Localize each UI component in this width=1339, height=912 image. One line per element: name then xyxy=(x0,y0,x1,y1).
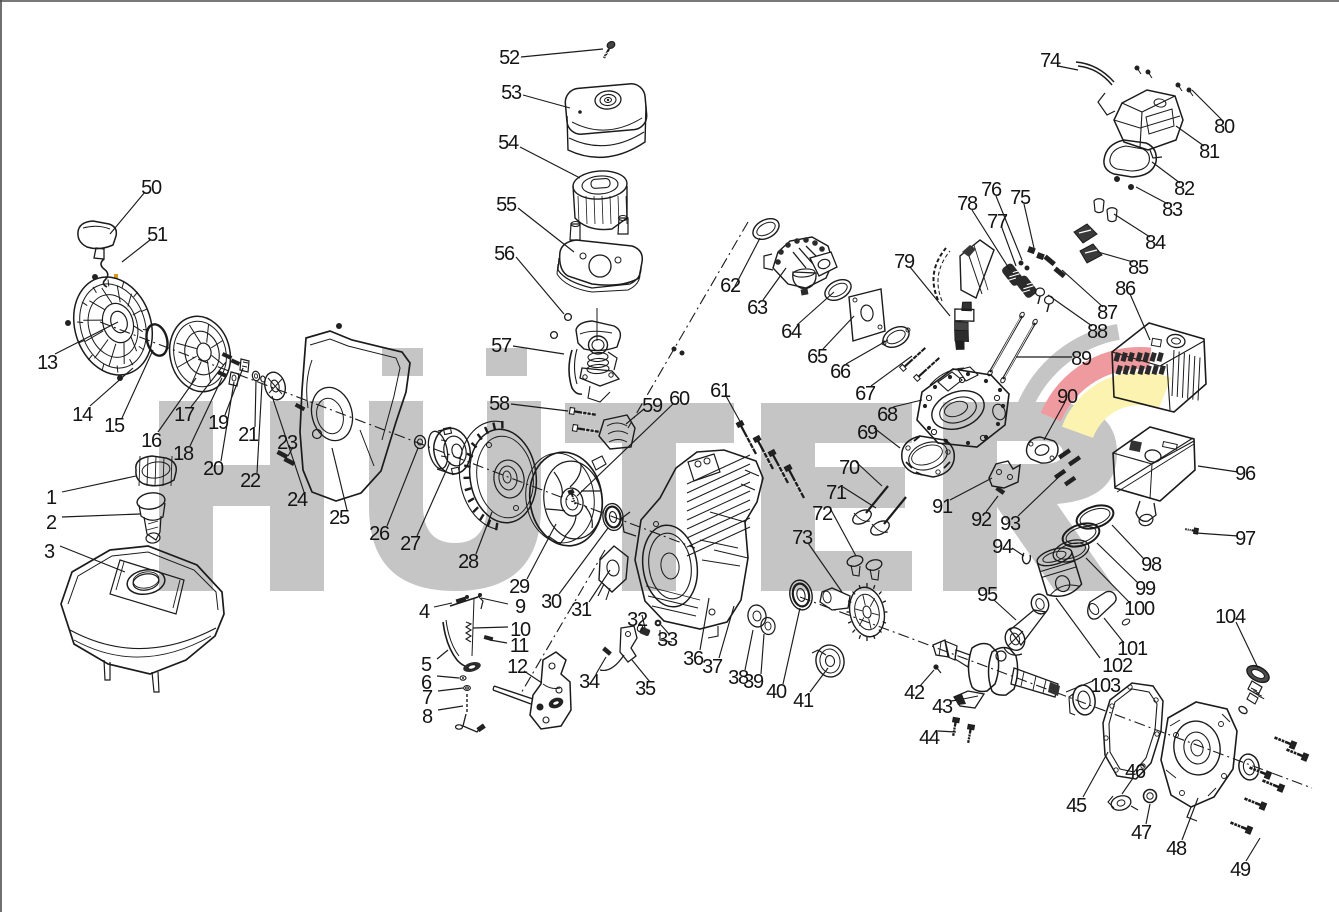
svg-text:70: 70 xyxy=(839,457,860,479)
svg-text:21: 21 xyxy=(238,424,259,446)
svg-text:39: 39 xyxy=(743,671,764,693)
svg-text:61: 61 xyxy=(710,380,731,402)
svg-text:8: 8 xyxy=(422,706,433,728)
svg-text:68: 68 xyxy=(877,404,898,426)
svg-text:3: 3 xyxy=(44,541,55,563)
svg-text:59: 59 xyxy=(642,395,663,417)
svg-text:73: 73 xyxy=(792,527,813,549)
svg-text:93: 93 xyxy=(1000,513,1021,535)
svg-text:60: 60 xyxy=(669,388,690,410)
svg-text:50: 50 xyxy=(141,177,162,199)
svg-text:22: 22 xyxy=(240,470,261,492)
svg-text:75: 75 xyxy=(1010,187,1031,209)
svg-text:44: 44 xyxy=(919,727,940,749)
svg-text:31: 31 xyxy=(571,599,592,621)
svg-text:42: 42 xyxy=(904,682,925,704)
svg-text:86: 86 xyxy=(1115,278,1136,300)
svg-text:13: 13 xyxy=(37,352,58,374)
svg-text:64: 64 xyxy=(781,321,802,343)
svg-text:104: 104 xyxy=(1215,606,1246,628)
svg-text:19: 19 xyxy=(208,412,229,434)
svg-text:88: 88 xyxy=(1087,321,1108,343)
svg-text:25: 25 xyxy=(329,507,350,529)
svg-text:57: 57 xyxy=(491,335,512,357)
svg-text:26: 26 xyxy=(369,523,390,545)
svg-text:82: 82 xyxy=(1174,178,1195,200)
svg-text:40: 40 xyxy=(766,681,787,703)
svg-text:81: 81 xyxy=(1199,141,1220,163)
svg-text:11: 11 xyxy=(510,635,529,657)
svg-text:2: 2 xyxy=(46,512,57,534)
svg-text:85: 85 xyxy=(1128,257,1149,279)
svg-text:41: 41 xyxy=(793,690,814,712)
svg-text:51: 51 xyxy=(147,224,168,246)
svg-text:17: 17 xyxy=(174,404,195,426)
svg-text:97: 97 xyxy=(1235,528,1256,550)
svg-text:74: 74 xyxy=(1040,50,1061,72)
svg-text:46: 46 xyxy=(1125,761,1146,783)
svg-text:90: 90 xyxy=(1057,386,1078,408)
svg-text:95: 95 xyxy=(977,584,998,606)
svg-text:47: 47 xyxy=(1131,822,1152,844)
svg-text:9: 9 xyxy=(515,596,526,618)
svg-text:48: 48 xyxy=(1166,838,1187,860)
svg-text:83: 83 xyxy=(1162,199,1183,221)
svg-text:14: 14 xyxy=(72,404,93,426)
svg-text:32: 32 xyxy=(627,609,648,631)
svg-text:45: 45 xyxy=(1066,795,1087,817)
svg-text:33: 33 xyxy=(657,629,678,651)
svg-text:55: 55 xyxy=(496,194,517,216)
svg-text:36: 36 xyxy=(683,648,704,670)
svg-text:15: 15 xyxy=(104,415,125,437)
svg-text:30: 30 xyxy=(541,591,562,613)
svg-text:76: 76 xyxy=(981,179,1002,201)
svg-text:16: 16 xyxy=(141,430,162,452)
svg-text:66: 66 xyxy=(830,361,851,383)
svg-text:53: 53 xyxy=(501,82,522,104)
svg-text:28: 28 xyxy=(458,551,479,573)
svg-text:80: 80 xyxy=(1214,116,1235,138)
svg-text:99: 99 xyxy=(1135,578,1156,600)
svg-text:78: 78 xyxy=(957,193,978,215)
svg-text:103: 103 xyxy=(1090,675,1121,697)
svg-text:67: 67 xyxy=(855,383,876,405)
svg-text:23: 23 xyxy=(277,432,298,454)
svg-text:12: 12 xyxy=(507,656,528,678)
svg-text:56: 56 xyxy=(494,243,515,265)
svg-text:4: 4 xyxy=(419,601,430,623)
svg-text:96: 96 xyxy=(1235,463,1256,485)
svg-text:20: 20 xyxy=(203,458,224,480)
svg-text:35: 35 xyxy=(635,678,656,700)
svg-text:69: 69 xyxy=(857,422,878,444)
svg-text:1: 1 xyxy=(46,487,57,509)
svg-text:29: 29 xyxy=(509,576,530,598)
svg-text:91: 91 xyxy=(932,496,953,518)
svg-text:63: 63 xyxy=(747,297,768,319)
svg-text:43: 43 xyxy=(932,696,953,718)
svg-text:62: 62 xyxy=(720,275,741,297)
svg-text:102: 102 xyxy=(1102,655,1133,677)
svg-text:92: 92 xyxy=(971,509,992,531)
svg-text:94: 94 xyxy=(992,536,1013,558)
svg-text:79: 79 xyxy=(894,251,915,273)
svg-text:100: 100 xyxy=(1124,598,1155,620)
svg-text:89: 89 xyxy=(1071,348,1092,370)
svg-text:65: 65 xyxy=(807,346,828,368)
svg-text:77: 77 xyxy=(987,211,1008,233)
svg-text:24: 24 xyxy=(287,489,308,511)
svg-text:54: 54 xyxy=(498,132,519,154)
svg-text:98: 98 xyxy=(1141,554,1162,576)
svg-text:72: 72 xyxy=(812,503,833,525)
svg-text:58: 58 xyxy=(489,393,510,415)
svg-text:84: 84 xyxy=(1145,232,1166,254)
svg-text:49: 49 xyxy=(1230,859,1251,881)
svg-text:71: 71 xyxy=(826,482,847,504)
svg-text:34: 34 xyxy=(579,671,600,693)
svg-text:27: 27 xyxy=(400,533,421,555)
svg-text:18: 18 xyxy=(173,443,194,465)
svg-text:52: 52 xyxy=(499,47,520,69)
svg-text:37: 37 xyxy=(702,656,723,678)
